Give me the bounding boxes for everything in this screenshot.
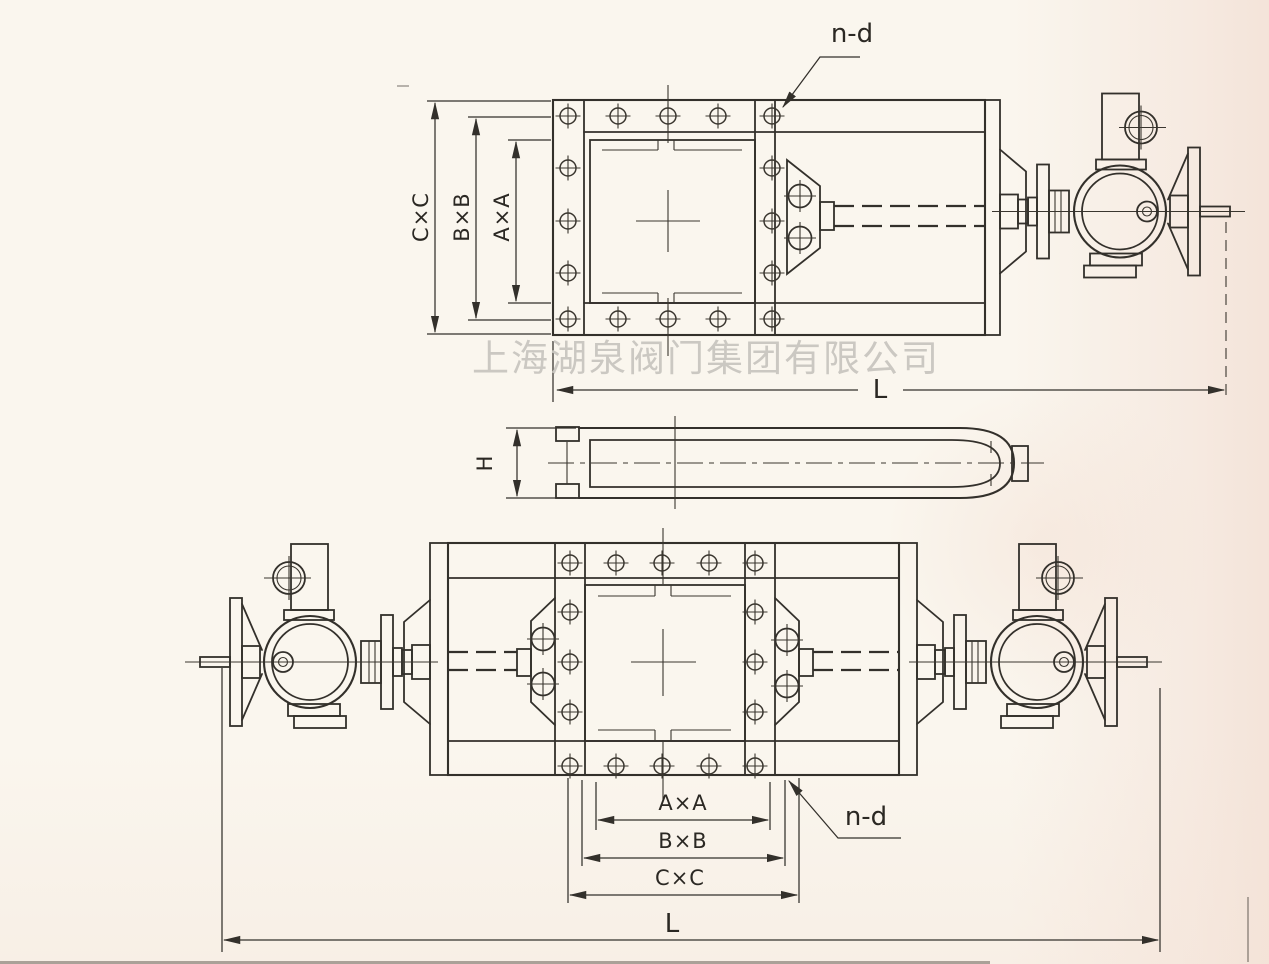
stem-gusset-right	[775, 598, 799, 725]
bolt-hole	[743, 650, 768, 675]
bolt-hole	[606, 307, 631, 332]
bolt-callout-label: n-d	[831, 19, 873, 49]
bolt-hole	[656, 104, 681, 129]
bottom-view	[185, 528, 1162, 800]
stem-screws	[448, 652, 899, 670]
dim-label-cxc: C×C	[655, 866, 705, 890]
bolt-hole	[760, 209, 785, 234]
bolt-hole	[556, 104, 581, 129]
dim-label-bxb: B×B	[658, 829, 707, 853]
bolt-hole	[760, 307, 785, 332]
bolt-hole	[556, 156, 581, 181]
bottom-valve-body	[448, 528, 899, 800]
watermark-text: 上海湖泉阀门集团有限公司	[472, 337, 940, 380]
bolt-hole	[606, 104, 631, 129]
scan-stray-marks	[397, 86, 1248, 962]
handwheel-actuator-left	[185, 544, 438, 728]
dim-label-axa: A×A	[658, 791, 707, 815]
bolt-hole	[556, 209, 581, 234]
bolt-hole	[706, 104, 731, 129]
dim-label-length: L	[665, 909, 680, 939]
handwheel-actuator-right	[992, 94, 1245, 278]
dim-label-cxc: C×C	[409, 192, 433, 242]
centerlines	[631, 528, 696, 800]
stem-gusset	[787, 160, 820, 274]
top-dim-cxc: C×C	[409, 101, 551, 334]
valve-drawing-svg: C×C B×B A×A n-d L 上海湖泉阀门集团有限公司	[0, 0, 1269, 964]
bolt-hole	[558, 551, 583, 576]
gusset-hole	[784, 222, 816, 254]
bolt-hole	[604, 551, 629, 576]
top-dim-axa: A×A	[490, 140, 551, 303]
flange-bolt-holes	[556, 104, 817, 332]
bolt-hole	[743, 700, 768, 725]
bolt-hole	[760, 261, 785, 286]
bolt-hole	[743, 600, 768, 625]
bolt-hole	[556, 307, 581, 332]
dim-label-bxb: B×B	[450, 192, 474, 241]
bolt-hole	[558, 650, 583, 675]
bottom-dim-axa: A×A	[596, 782, 770, 830]
gate-opening	[585, 585, 745, 741]
bolt-hole	[656, 307, 681, 332]
bolt-hole	[558, 600, 583, 625]
bolt-hole	[760, 104, 785, 129]
bolt-hole	[743, 551, 768, 576]
top-bolt-callout: n-d	[783, 19, 873, 107]
yoke-plate-left	[430, 543, 448, 775]
bolt-hole	[556, 261, 581, 286]
bolt-hole	[558, 700, 583, 725]
bolt-hole	[760, 156, 785, 181]
bolt-hole	[697, 551, 722, 576]
side-section-view	[548, 416, 1044, 509]
drawing-page: C×C B×B A×A n-d L 上海湖泉阀门集团有限公司	[0, 0, 1269, 964]
handwheel-actuator-right	[909, 544, 1162, 728]
yoke-plate	[985, 100, 1000, 335]
stem-screw	[834, 206, 985, 226]
dim-label-axa: A×A	[490, 192, 514, 241]
bottom-bolt-callout: n-d	[789, 781, 901, 838]
stem-gusset-left	[531, 598, 555, 725]
bolt-hole	[650, 551, 675, 576]
bolt-hole	[706, 307, 731, 332]
dim-label-height: H	[473, 455, 497, 472]
gusset-hole	[784, 180, 816, 212]
top-valve-body	[553, 85, 985, 356]
yoke-plate-right	[899, 543, 917, 775]
bolt-callout-label: n-d	[845, 802, 887, 832]
